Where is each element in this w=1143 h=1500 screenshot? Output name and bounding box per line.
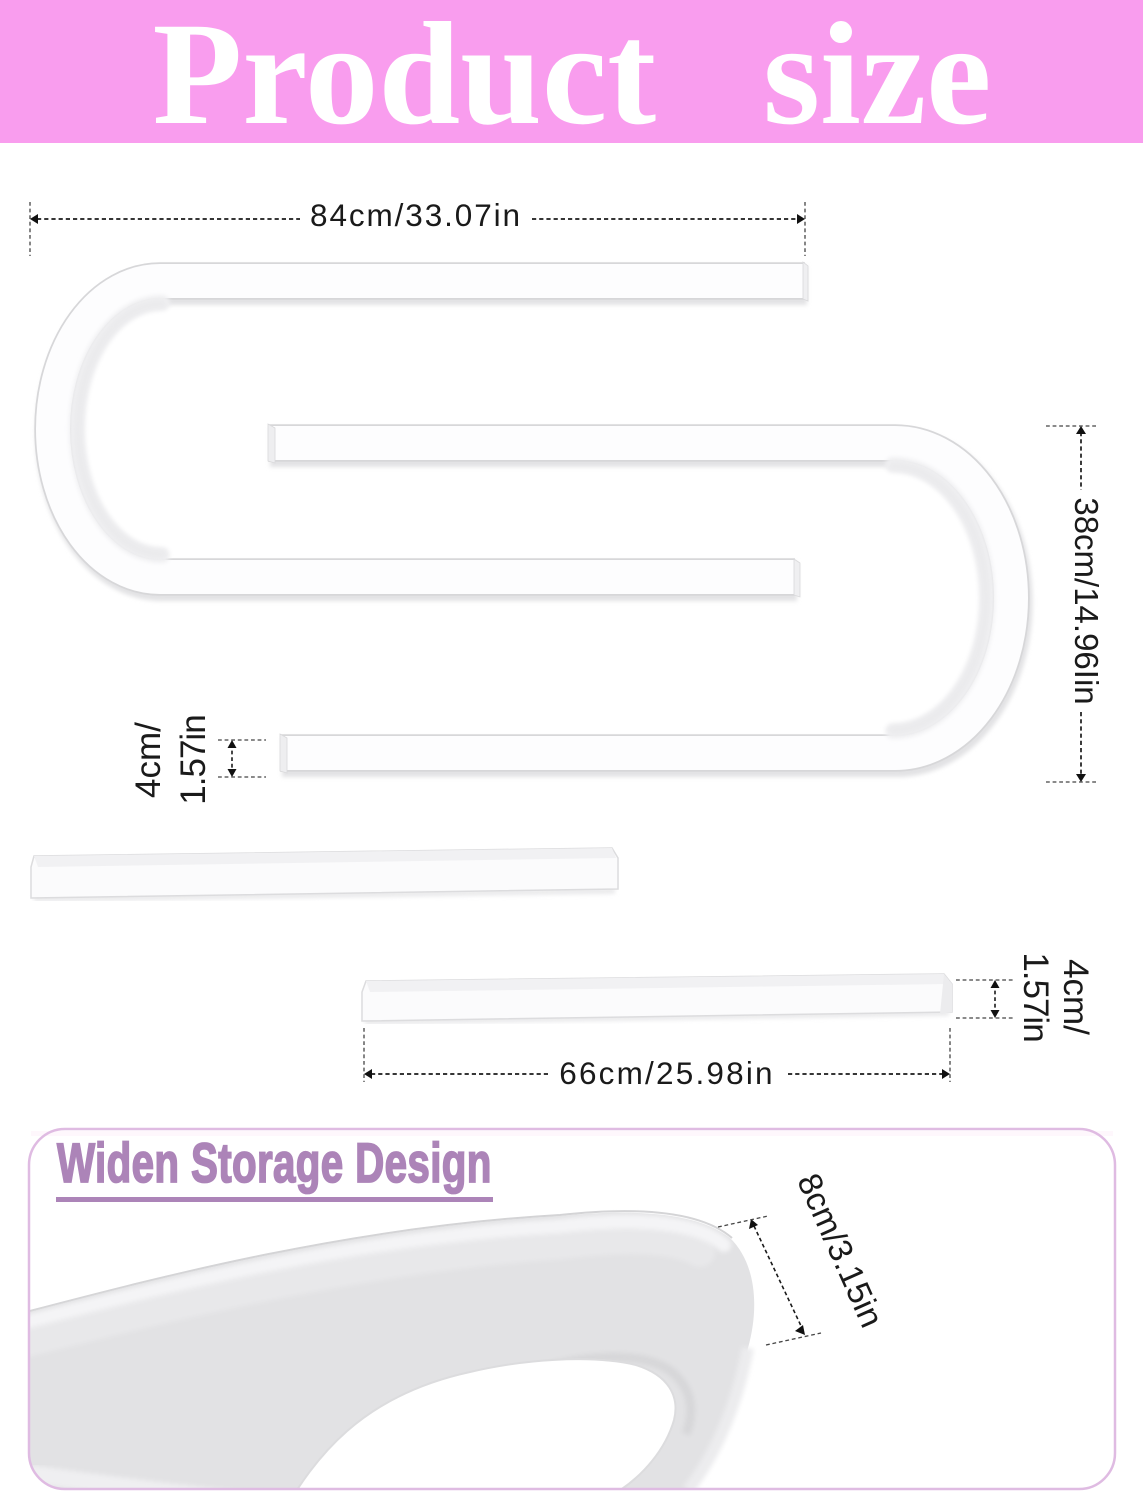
svg-text:66cm/25.98in: 66cm/25.98in bbox=[559, 1055, 775, 1091]
svg-text:84cm/33.07in: 84cm/33.07in bbox=[310, 197, 522, 233]
svg-text:1.57in: 1.57in bbox=[1016, 952, 1055, 1041]
svg-text:1.57in: 1.57in bbox=[174, 715, 213, 804]
svg-text:4cm/: 4cm/ bbox=[129, 722, 168, 798]
svg-text:38cm/14.96Iin: 38cm/14.96Iin bbox=[1068, 497, 1105, 704]
svg-text:4cm/: 4cm/ bbox=[1056, 959, 1095, 1035]
